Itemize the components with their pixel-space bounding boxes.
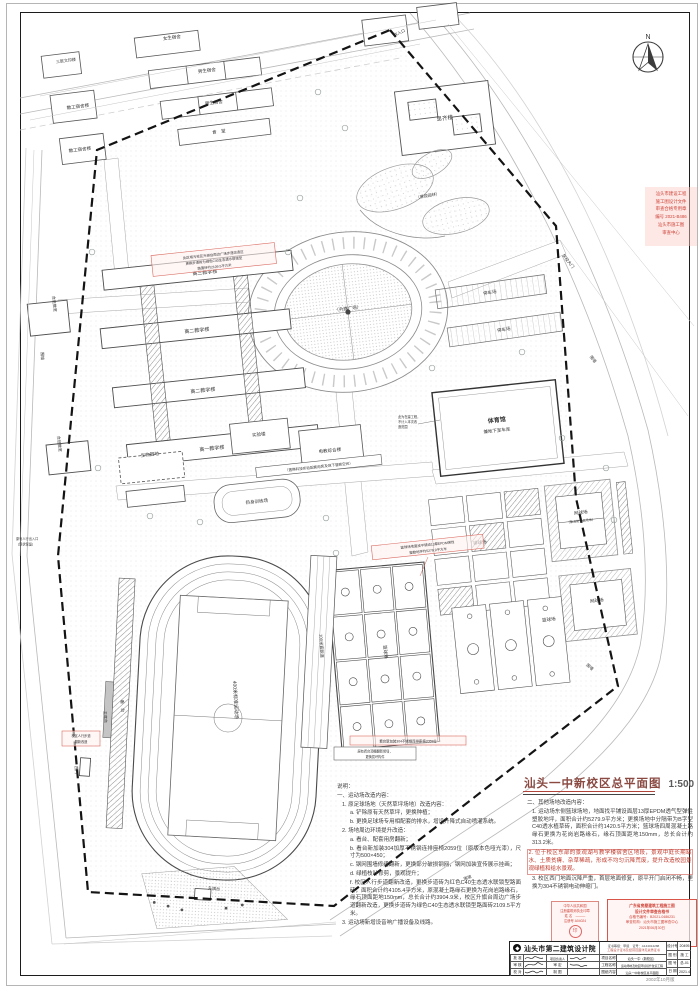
note-line: 一、运动场改造内容： (337, 793, 521, 801)
sig-label: 制 图 (546, 968, 568, 976)
meta-value: 20495 (677, 942, 691, 950)
drawing-title-text: 汕头一中新校区总平面图 (524, 778, 662, 790)
signature (523, 968, 547, 976)
note-line: a. 看台、配套用房翻新； (337, 837, 521, 845)
basketball-grid (326, 562, 439, 750)
north-arrow-icon: N (633, 34, 663, 72)
company-name: 汕头市第二建筑设计院 (524, 943, 596, 953)
stamp-line: 编号 2021-B486 (645, 213, 697, 221)
stamp-line: 施工图设计文件 (645, 198, 697, 206)
note-line: 3. 校区西门地面沉降严重，首层地面修复，原平开门启闭不畅，更换为304不锈钢电… (527, 876, 693, 892)
svg-text:校区人行步道: 校区人行步道 (71, 733, 91, 738)
note-line: f. 校区人行步道翻新改造，更换步道砖为红色C40生态透水联锁型路面砖，面积合计… (337, 880, 521, 919)
info-label: 图纸内容 (599, 968, 617, 976)
svg-text:主席台: 主席台 (103, 711, 110, 723)
drawing-scale: 1:500 (669, 779, 695, 790)
svg-text:更换损坏构件: 更换损坏构件 (365, 754, 385, 759)
note-line: 1. 原足球场地（天然草坪场地）改造内容： (337, 802, 521, 810)
meta-value: 2021.4 (677, 967, 691, 976)
note-line: b. 更换足球场专用相配套的排水，增设升降式自动喷灌系统。 (337, 819, 521, 827)
tennis-court-b (559, 568, 638, 641)
svg-text:原有人行出入口: 原有人行出入口 (16, 536, 38, 541)
note-line-red: 2. 位于校区东部的景观湖与教学楼宿舍区地段，景观中庭长期缺水、土质贫瘠、杂草稀… (527, 849, 693, 875)
svg-text:围墙: 围墙 (40, 352, 46, 360)
sig-label: 校 对 (510, 968, 524, 976)
svg-text:西门: 西门 (73, 766, 80, 775)
note-line: b. 看台新加装304加厚不锈钢连排座椅2059位（原版本色哑光漆），尺寸为50… (337, 846, 521, 862)
note-line: d. 绿植枝叶修剪，景观提升； (337, 871, 521, 879)
company-cell: 汕头市第二建筑设计院 (510, 942, 599, 954)
note-line: 3. 运动场新增设音响广播设备及线路。 (337, 920, 521, 928)
drawing-title: 汕头一中新校区总平面图1:500 (524, 775, 694, 791)
west-gate (79, 758, 90, 777)
note-line: 二、其他场地改造内容： (527, 800, 693, 808)
note-line: a. 铲除原有天然草坪，更换种植； (337, 810, 521, 818)
svg-text:此为在建工程，: 此为在建工程， (398, 414, 420, 419)
svg-text:升旗台: 升旗台 (208, 885, 220, 892)
note-line: 1. 运动场东侧篮球场地，地面找平铺设面层13厚EPDM透气型弹性塑胶地坪，面积… (527, 809, 693, 848)
note-line: 2. 场地周边环境提升改造： (337, 828, 521, 836)
edition-note: 2002年10月版 (646, 977, 675, 983)
certificate-line: 工程设计证书及经营范围详见资质证书 (600, 948, 667, 953)
svg-text:翻新改造: 翻新改造 (75, 739, 89, 744)
info-value: 汕头一中新校区总平面图 (616, 968, 667, 976)
svg-text:原有看台顶棚翻新修缮，: 原有看台顶棚翻新修缮， (357, 749, 392, 754)
svg-text:不计入本次改: 不计入本次改 (398, 419, 418, 424)
stamp-line: 审查合格专用章 (645, 205, 697, 213)
drawing-sheet: 教工宿舍楼 教工宿舍楼 三层文印楼 女生宿舍 男生宿舍 男生宿舍 食 堂 思齐楼… (0, 0, 700, 989)
basketball-courts-east (452, 597, 570, 694)
round-seal-icon: 印 (569, 925, 582, 938)
svg-text:造范围: 造范围 (398, 424, 408, 429)
stamp-line: 汕头市施工图 (645, 221, 697, 229)
title-block: 汕头市第二建筑设计院 证书等级：甲级 证号：A144014288 工程设计证书及… (509, 941, 691, 976)
svg-text:N: N (645, 34, 650, 41)
svg-text:（现状保留）: （现状保留） (16, 542, 35, 547)
notes-left: 说明： 一、运动场改造内容： 1. 原足球场地（天然草坪场地）改造内容： a. … (337, 784, 521, 929)
title-underline-dark (523, 794, 655, 795)
signature (567, 968, 600, 976)
stamp-line: 汕头市建设工程 (645, 190, 697, 198)
svg-text:围墙: 围墙 (589, 354, 599, 364)
stamp-line: 注册号 A04024 (552, 919, 598, 924)
stamp-line: 审查中心 (645, 229, 697, 237)
review-certificate-stamp: 广东省房屋建筑工程施工图 设计文件审查合格书 合格书编号：B2021-04862… (607, 899, 697, 947)
stamp-line: 2021年06月30日 (608, 926, 696, 932)
svg-text:学校大门: 学校大门 (560, 252, 576, 270)
review-stamp-side: 汕头市建设工程 施工图设计文件 审查合格专用章 编号 2021-B486 汕头市… (645, 187, 697, 246)
note-line: 说明： (337, 784, 521, 792)
note-line: c. 钢网围墙修缮翻新，更换部分破损钢网，钢网加装宣传展示挂画； (337, 862, 521, 870)
title-underline-red (523, 791, 655, 792)
company-logo-icon (513, 944, 521, 952)
notes-right: 二、其他场地改造内容： 1. 运动场东侧篮球场地，地面找平铺设面层13厚EPDM… (527, 800, 693, 893)
svg-text:看台新加装304不锈钢连排座椅2059位: 看台新加装304不锈钢连排座椅2059位 (379, 739, 437, 744)
